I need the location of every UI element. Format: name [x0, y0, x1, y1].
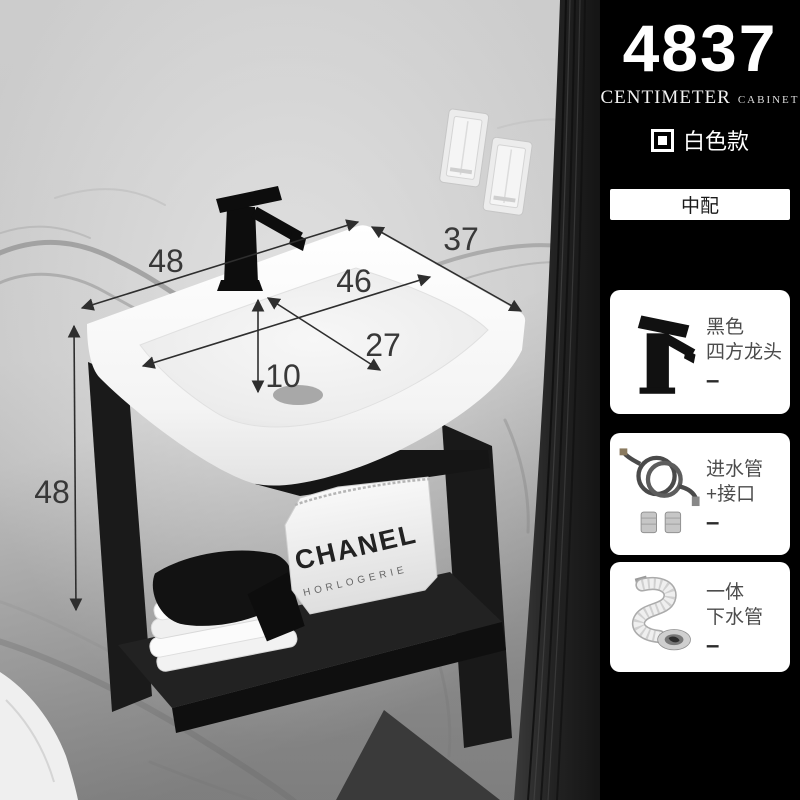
unit-sublabel: CABINET: [738, 94, 800, 106]
checkbox-icon: [651, 129, 674, 152]
accessory-cards: 黑色 四方龙头 –: [600, 290, 800, 672]
product-listing-image: CHANEL HORLOGERIE 48 37: [0, 0, 800, 800]
accessory-label: 一体 下水管 –: [706, 581, 763, 654]
dash-indicator: –: [706, 639, 763, 653]
dimension-label-frame-height: 48: [34, 474, 70, 510]
unit-row: CENTIMETER CABINET: [600, 87, 800, 109]
dimension-label-inner-width: 46: [336, 263, 372, 299]
product-photo: CHANEL HORLOGERIE 48 37: [0, 0, 600, 800]
dimension-label-inner-depth: 27: [365, 327, 401, 363]
drain-pipe-image: [614, 568, 706, 666]
black-faucet-image: [614, 296, 706, 408]
accessory-card-inlet-hose: 进水管 +接口 –: [610, 433, 790, 555]
accessory-label: 黑色 四方龙头 –: [706, 316, 782, 389]
dash-indicator: –: [706, 374, 782, 388]
dimension-label-side-depth: 37: [443, 221, 479, 257]
info-panel: 4837 CENTIMETER CABINET 白色款 中配: [600, 0, 800, 800]
model-number: 4837: [600, 14, 800, 83]
accessory-card-faucet: 黑色 四方龙头 –: [610, 290, 790, 414]
config-badge: 中配: [610, 189, 790, 220]
unit-label: CENTIMETER: [601, 87, 731, 109]
dimension-label-inner-height: 10: [265, 358, 301, 394]
dimension-label-top-width: 48: [148, 243, 184, 279]
variant-label: 白色款: [683, 124, 749, 156]
dash-indicator: –: [706, 516, 763, 530]
variant-row: 白色款: [600, 124, 800, 156]
accessory-card-drain-pipe: 一体 下水管 –: [610, 562, 790, 672]
accessory-label: 进水管 +接口 –: [706, 458, 763, 531]
inlet-hose-image: [614, 439, 706, 549]
